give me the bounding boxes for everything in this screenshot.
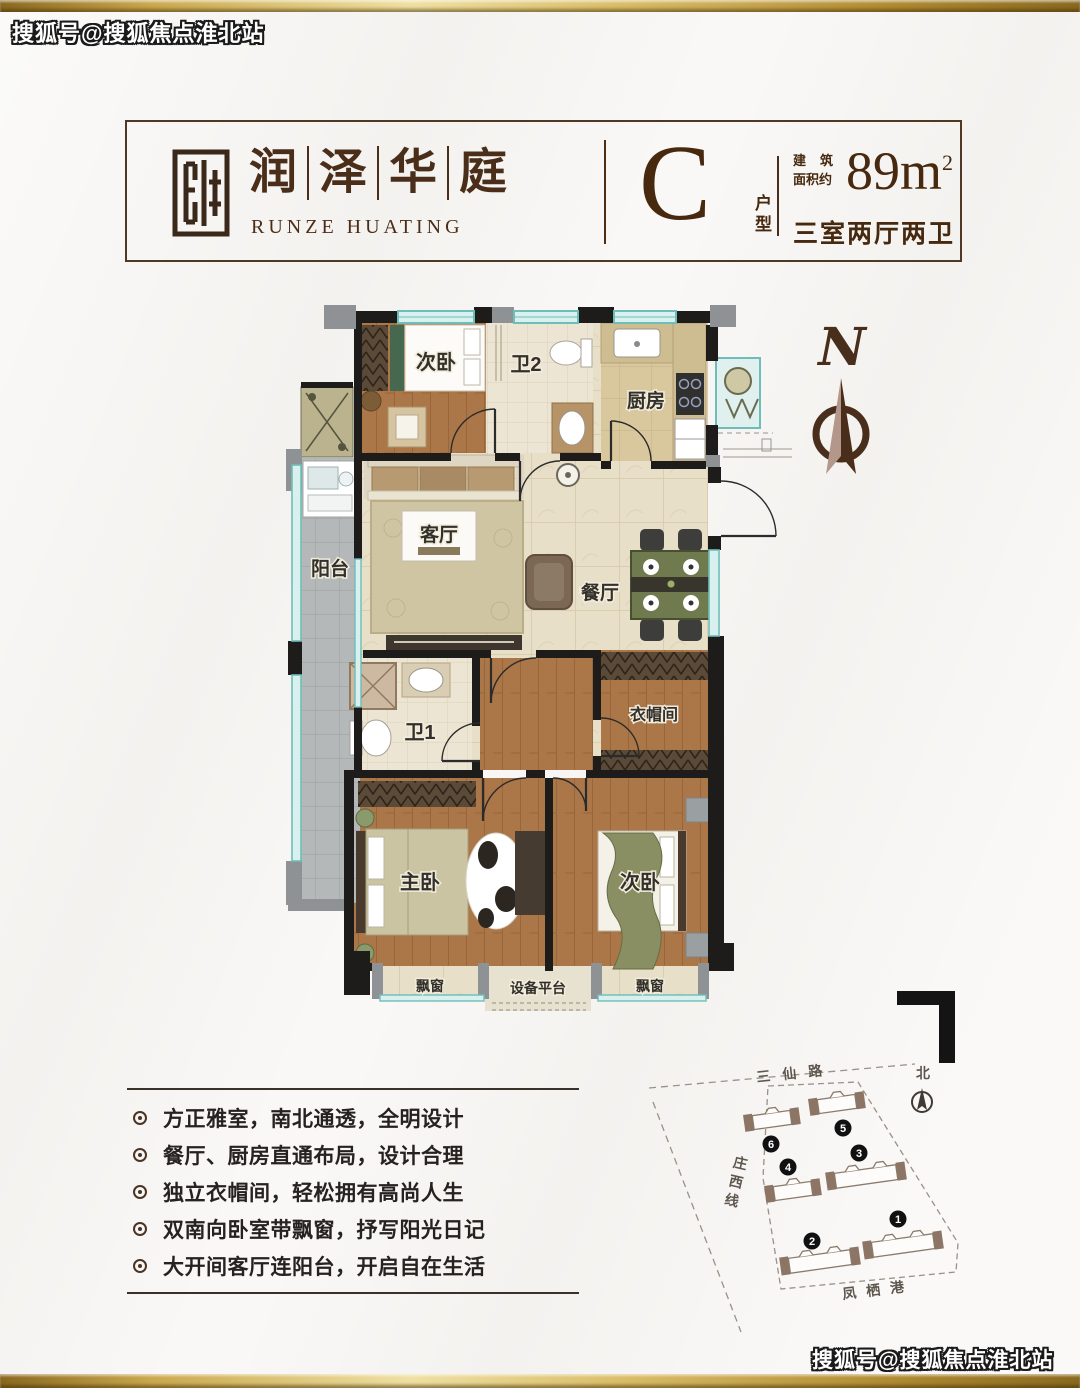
- floor-plan: 次卧 卫2 厨房 阳台 客厅 餐厅 卫1 衣帽间 主卧 次卧 飘窗 设备平台 飘…: [268, 303, 798, 1018]
- sitemap-north-label: 北: [916, 1065, 930, 1081]
- room-label-bath1: 卫1: [404, 722, 435, 744]
- site-map: 三仙路 庄西线 凤栖港 北: [645, 1056, 967, 1336]
- building-number-3: 3: [856, 1148, 862, 1160]
- building-number-6: 6: [768, 1139, 774, 1151]
- room-label-dining: 餐厅: [581, 581, 619, 604]
- area-prefix-line2: 面积约: [793, 171, 837, 190]
- bullet-icon: [133, 1148, 147, 1162]
- brand-char: 泽: [319, 149, 367, 197]
- room-label-equipment: 设备平台: [510, 980, 566, 996]
- brand-name-cn: 润 泽 华 庭: [249, 146, 507, 200]
- area-block: 建筑 面积约 89m2: [793, 144, 953, 198]
- building-number-4: 4: [785, 1162, 792, 1174]
- feature-text: 双南向卧室带飘窗，抒写阳光日记: [163, 1214, 486, 1244]
- room-label-bedroom-bottom: 次卧: [620, 870, 660, 894]
- bullet-icon: [133, 1111, 147, 1125]
- brand-char: 华: [389, 149, 437, 197]
- layout-text: 三室两厅两卫: [793, 214, 955, 250]
- brand-logo-icon: [171, 148, 231, 238]
- room-label-cloak: 衣帽间: [630, 705, 678, 724]
- building-number-1: 1: [895, 1214, 901, 1226]
- gold-border-top: [0, 0, 1080, 12]
- feature-text: 餐厅、厨房直通布局，设计合理: [163, 1140, 464, 1170]
- brand-char: 庭: [459, 149, 507, 197]
- room-label-bedroom-top: 次卧: [416, 350, 456, 374]
- brand-name-en: RUNZE HUATING: [251, 216, 464, 239]
- unit-type-label: 户型: [749, 194, 774, 236]
- building-6: [743, 1104, 801, 1132]
- room-label-living: 客厅: [420, 523, 458, 546]
- area-number: 89m: [846, 141, 942, 201]
- building-4: [764, 1175, 822, 1203]
- unit-type-letter: C: [639, 114, 711, 254]
- header-divider: [604, 140, 606, 244]
- gold-border-bottom: [0, 1374, 1080, 1388]
- brand-divider: [377, 146, 379, 200]
- room-label-bath2: 卫2: [510, 354, 541, 376]
- area-prefix: 建筑 面积约: [793, 152, 837, 190]
- bullet-icon: [133, 1185, 147, 1199]
- feature-item: 独立衣帽间，轻松拥有高尚人生: [133, 1173, 579, 1210]
- area-sup: 2: [942, 150, 953, 175]
- brand-char: 润: [249, 149, 297, 197]
- building-number-5: 5: [840, 1123, 846, 1135]
- feature-item: 餐厅、厨房直通布局，设计合理: [133, 1136, 579, 1173]
- header-box: 润 泽 华 庭 RUNZE HUATING C 户型 建筑 面积约 89m2 三…: [125, 120, 962, 262]
- room-label-bay-left: 飘窗: [416, 978, 444, 994]
- building-1: [862, 1228, 944, 1260]
- sitemap-north-icon: [912, 1088, 932, 1112]
- area-prefix-line1: 建筑: [793, 152, 837, 171]
- feature-text: 大开间客厅连阳台，开启自在生活: [163, 1251, 486, 1281]
- compass-n-letter: N: [798, 322, 886, 374]
- room-label-kitchen: 厨房: [627, 389, 665, 412]
- building-number-2: 2: [809, 1236, 815, 1248]
- rule-bottom: [127, 1292, 579, 1294]
- bullet-icon: [133, 1259, 147, 1273]
- building-3: [825, 1159, 907, 1191]
- road-left-line: [653, 1102, 741, 1332]
- building-5: [808, 1088, 866, 1116]
- brand-divider: [447, 146, 449, 200]
- feature-text: 独立衣帽间，轻松拥有高尚人生: [163, 1177, 464, 1207]
- bullet-icon: [133, 1222, 147, 1236]
- north-compass: N: [796, 322, 886, 492]
- feature-list-section: 方正雅室，南北通透，全明设计 餐厅、厨房直通布局，设计合理 独立衣帽间，轻松拥有…: [127, 1088, 579, 1294]
- room-label-bay-right: 飘窗: [636, 978, 664, 994]
- feature-item: 方正雅室，南北通透，全明设计: [133, 1099, 579, 1136]
- road-label-bottom: 凤栖港: [841, 1277, 914, 1302]
- feature-item: 大开间客厅连阳台，开启自在生活: [133, 1247, 579, 1284]
- room-label-master: 主卧: [400, 870, 440, 894]
- road-label-top: 三仙路: [756, 1061, 835, 1085]
- watermark-top: 搜狐号@搜狐焦点淮北站: [12, 16, 264, 48]
- watermark-bottom: 搜狐号@搜狐焦点淮北站: [812, 1344, 1053, 1374]
- area-value: 89m2: [846, 144, 953, 198]
- feature-text: 方正雅室，南北通透，全明设计: [163, 1103, 464, 1133]
- building-2: [779, 1244, 861, 1276]
- brand-divider: [307, 146, 309, 200]
- feature-item: 双南向卧室带飘窗，抒写阳光日记: [133, 1210, 579, 1247]
- header-divider: [777, 156, 779, 236]
- feature-list: 方正雅室，南北通透，全明设计 餐厅、厨房直通布局，设计合理 独立衣帽间，轻松拥有…: [127, 1090, 579, 1292]
- room-label-balcony: 阳台: [311, 557, 349, 580]
- poster-page: 搜狐号@搜狐焦点淮北站 润 泽 华 庭 RUNZE HUATING C 户型: [0, 0, 1080, 1388]
- road-label-left: 庄西线: [721, 1154, 750, 1214]
- compass-arrow-icon: [804, 374, 878, 484]
